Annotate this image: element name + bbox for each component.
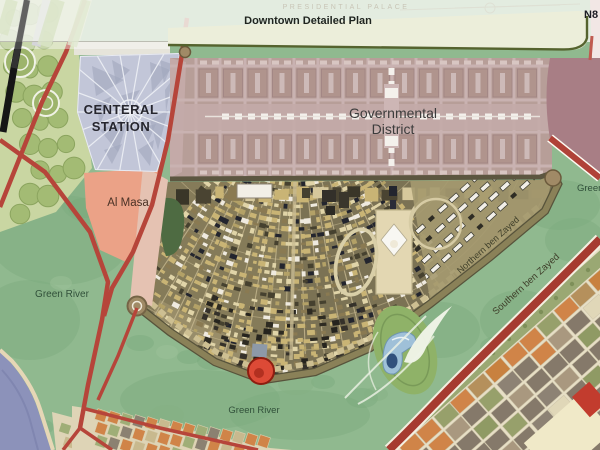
svg-text:N8: N8 [584,9,598,21]
svg-text:Governmental: Governmental [349,105,437,121]
svg-text:STATION: STATION [92,119,151,134]
svg-text:Downtown Detailed Plan: Downtown Detailed Plan [244,15,372,27]
svg-text:Green River: Green River [228,405,279,416]
svg-text:District: District [372,121,415,137]
svg-text:Green Riv: Green Riv [577,183,600,194]
svg-text:Green River: Green River [35,289,90,300]
svg-text:CENTERAL: CENTERAL [84,102,159,117]
svg-text:PRESIDENTIAL PALACE: PRESIDENTIAL PALACE [283,4,410,11]
svg-text:Al Masa: Al Masa [107,197,149,209]
